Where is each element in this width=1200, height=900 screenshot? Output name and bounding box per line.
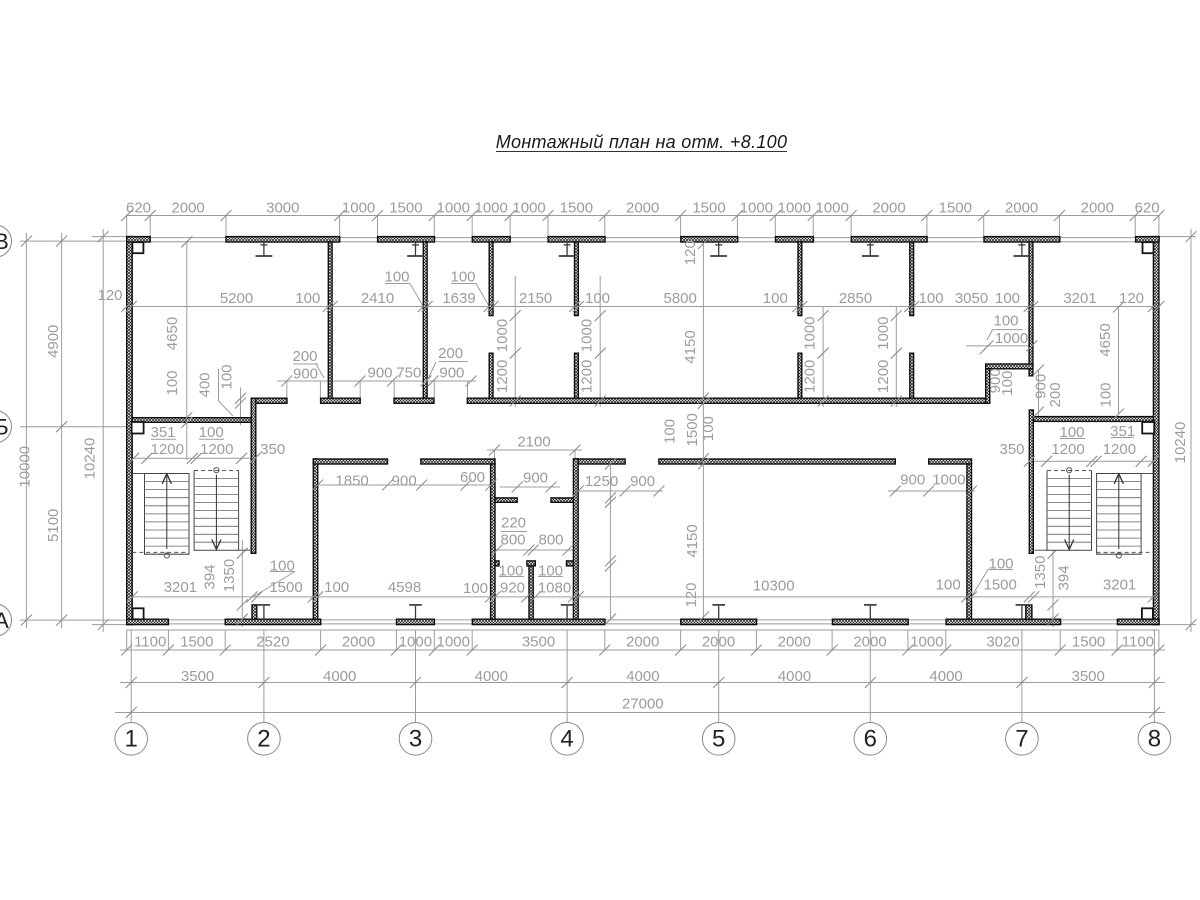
svg-text:1080: 1080: [538, 580, 571, 597]
svg-text:1200: 1200: [151, 441, 184, 458]
svg-text:600: 600: [460, 469, 485, 486]
svg-text:2000: 2000: [626, 200, 659, 217]
svg-text:1100: 1100: [1122, 634, 1154, 651]
svg-text:2100: 2100: [517, 434, 550, 451]
svg-text:100: 100: [700, 416, 717, 441]
svg-text:351: 351: [1110, 423, 1135, 440]
svg-text:100: 100: [999, 371, 1016, 396]
svg-text:1500: 1500: [684, 413, 701, 446]
svg-text:100: 100: [1059, 424, 1084, 441]
svg-text:2000: 2000: [1005, 200, 1038, 217]
svg-text:В: В: [0, 229, 9, 254]
svg-text:100: 100: [538, 563, 563, 580]
svg-text:3500: 3500: [181, 668, 214, 685]
svg-text:3201: 3201: [1063, 290, 1096, 307]
svg-text:1500: 1500: [389, 200, 422, 217]
svg-text:100: 100: [164, 370, 181, 395]
svg-text:1000: 1000: [494, 319, 511, 352]
svg-text:394: 394: [1055, 565, 1072, 590]
svg-text:1200: 1200: [1103, 441, 1136, 458]
svg-text:3201: 3201: [1103, 577, 1136, 594]
svg-text:3500: 3500: [1072, 668, 1105, 685]
svg-text:4650: 4650: [1097, 323, 1114, 356]
svg-text:3050: 3050: [955, 290, 988, 307]
svg-text:2520: 2520: [256, 634, 289, 651]
svg-text:100: 100: [450, 269, 475, 286]
svg-text:200: 200: [438, 345, 463, 362]
svg-text:100: 100: [919, 290, 944, 307]
svg-text:1500: 1500: [180, 634, 213, 651]
svg-text:10240: 10240: [1172, 422, 1189, 464]
svg-text:100: 100: [993, 313, 1018, 330]
svg-text:1200: 1200: [200, 441, 233, 458]
svg-text:1350: 1350: [1032, 556, 1049, 589]
svg-text:1000: 1000: [342, 200, 375, 217]
svg-text:1000: 1000: [475, 200, 508, 217]
svg-text:350: 350: [260, 441, 285, 458]
svg-text:1500: 1500: [984, 577, 1017, 594]
svg-text:120: 120: [1119, 290, 1144, 307]
svg-text:350: 350: [999, 441, 1024, 458]
svg-text:7: 7: [1015, 726, 1028, 753]
svg-text:1250: 1250: [585, 473, 618, 490]
svg-text:220: 220: [501, 515, 526, 532]
svg-text:100: 100: [463, 580, 488, 597]
svg-text:1000: 1000: [816, 200, 849, 217]
svg-text:100: 100: [585, 290, 610, 307]
svg-text:100: 100: [988, 556, 1013, 573]
svg-text:800: 800: [500, 532, 525, 549]
svg-text:100: 100: [324, 579, 349, 596]
svg-text:4650: 4650: [164, 317, 181, 350]
svg-text:1200: 1200: [579, 360, 596, 393]
svg-text:1500: 1500: [939, 200, 972, 217]
svg-text:1: 1: [125, 726, 138, 753]
svg-text:1850: 1850: [335, 473, 368, 490]
svg-text:5200: 5200: [220, 290, 253, 307]
svg-text:10240: 10240: [82, 438, 99, 480]
svg-text:Монтажный план на отм. +8.100: Монтажный план на отм. +8.100: [496, 132, 788, 152]
svg-text:620: 620: [1135, 200, 1160, 217]
svg-text:1500: 1500: [692, 200, 725, 217]
svg-text:2000: 2000: [853, 634, 886, 651]
svg-text:900: 900: [392, 473, 417, 490]
svg-text:6: 6: [864, 726, 877, 753]
svg-text:3020: 3020: [986, 634, 1019, 651]
svg-text:2000: 2000: [1081, 200, 1114, 217]
svg-text:100: 100: [662, 419, 679, 444]
svg-text:900: 900: [439, 365, 464, 382]
svg-text:2150: 2150: [519, 290, 552, 307]
svg-text:27000: 27000: [622, 696, 664, 713]
svg-text:1639: 1639: [442, 290, 475, 307]
svg-text:620: 620: [126, 200, 151, 217]
svg-text:1100: 1100: [134, 634, 166, 651]
svg-text:1000: 1000: [399, 634, 432, 651]
svg-text:8: 8: [1148, 726, 1161, 753]
svg-text:100: 100: [763, 290, 788, 307]
svg-text:1200: 1200: [494, 360, 511, 393]
svg-text:4598: 4598: [388, 579, 421, 596]
svg-text:1000: 1000: [910, 634, 943, 651]
svg-text:1000: 1000: [579, 319, 596, 352]
svg-text:100: 100: [219, 364, 236, 389]
svg-text:920: 920: [500, 580, 525, 597]
svg-text:2000: 2000: [778, 634, 811, 651]
svg-text:900: 900: [900, 472, 925, 489]
svg-text:800: 800: [538, 532, 563, 549]
svg-text:5100: 5100: [45, 509, 62, 542]
svg-text:750: 750: [396, 365, 421, 382]
svg-text:100: 100: [199, 424, 224, 441]
svg-text:100: 100: [995, 290, 1020, 307]
svg-text:5800: 5800: [664, 290, 697, 307]
svg-text:10300: 10300: [753, 578, 795, 595]
svg-text:400: 400: [197, 372, 214, 397]
svg-text:3: 3: [409, 726, 422, 753]
svg-text:1350: 1350: [221, 559, 238, 592]
svg-text:100: 100: [270, 557, 295, 574]
svg-text:4150: 4150: [682, 330, 699, 363]
svg-text:2000: 2000: [626, 634, 659, 651]
svg-text:1000: 1000: [437, 200, 470, 217]
svg-text:394: 394: [201, 564, 218, 589]
svg-text:1200: 1200: [1051, 441, 1084, 458]
svg-text:1500: 1500: [269, 579, 302, 596]
svg-text:4000: 4000: [778, 668, 811, 685]
svg-text:100: 100: [295, 290, 320, 307]
svg-text:1000: 1000: [512, 200, 545, 217]
svg-text:1200: 1200: [875, 360, 892, 393]
svg-text:900: 900: [293, 366, 318, 383]
svg-text:2000: 2000: [342, 634, 375, 651]
svg-text:5: 5: [712, 726, 725, 753]
svg-text:4000: 4000: [929, 668, 962, 685]
svg-text:2: 2: [257, 726, 270, 753]
svg-text:4150: 4150: [684, 524, 701, 557]
svg-text:1000: 1000: [995, 330, 1028, 347]
svg-text:1000: 1000: [875, 317, 892, 350]
svg-text:351: 351: [151, 424, 176, 441]
svg-text:Б: Б: [0, 415, 9, 440]
svg-text:900: 900: [523, 470, 548, 487]
svg-text:А: А: [0, 608, 9, 633]
svg-text:2000: 2000: [872, 200, 905, 217]
svg-text:1500: 1500: [1072, 634, 1105, 651]
svg-text:1000: 1000: [802, 317, 819, 350]
svg-text:1500: 1500: [560, 200, 593, 217]
svg-text:1000: 1000: [932, 472, 965, 489]
svg-text:100: 100: [1098, 382, 1115, 407]
svg-text:4000: 4000: [323, 668, 356, 685]
svg-text:2000: 2000: [171, 200, 204, 217]
svg-text:1000: 1000: [778, 200, 811, 217]
svg-text:2410: 2410: [361, 290, 394, 307]
svg-text:100: 100: [936, 577, 961, 594]
svg-text:1000: 1000: [740, 200, 773, 217]
svg-text:100: 100: [384, 269, 409, 286]
svg-text:120: 120: [683, 582, 700, 607]
svg-text:1000: 1000: [437, 634, 470, 651]
svg-text:1200: 1200: [802, 360, 819, 393]
svg-text:2000: 2000: [702, 634, 735, 651]
svg-text:900: 900: [367, 365, 392, 382]
svg-text:4000: 4000: [626, 668, 659, 685]
svg-text:120: 120: [97, 287, 122, 304]
svg-text:900: 900: [630, 473, 655, 490]
svg-text:10000: 10000: [16, 446, 33, 488]
svg-text:4: 4: [560, 726, 573, 753]
svg-text:4900: 4900: [45, 325, 62, 358]
svg-text:200: 200: [292, 348, 317, 365]
svg-text:3201: 3201: [164, 579, 197, 596]
svg-text:3500: 3500: [522, 634, 555, 651]
svg-text:200: 200: [1047, 382, 1064, 407]
svg-text:3000: 3000: [266, 200, 299, 217]
svg-text:120: 120: [682, 240, 699, 265]
svg-text:100: 100: [498, 563, 523, 580]
svg-text:4000: 4000: [475, 668, 508, 685]
svg-text:2850: 2850: [839, 290, 872, 307]
